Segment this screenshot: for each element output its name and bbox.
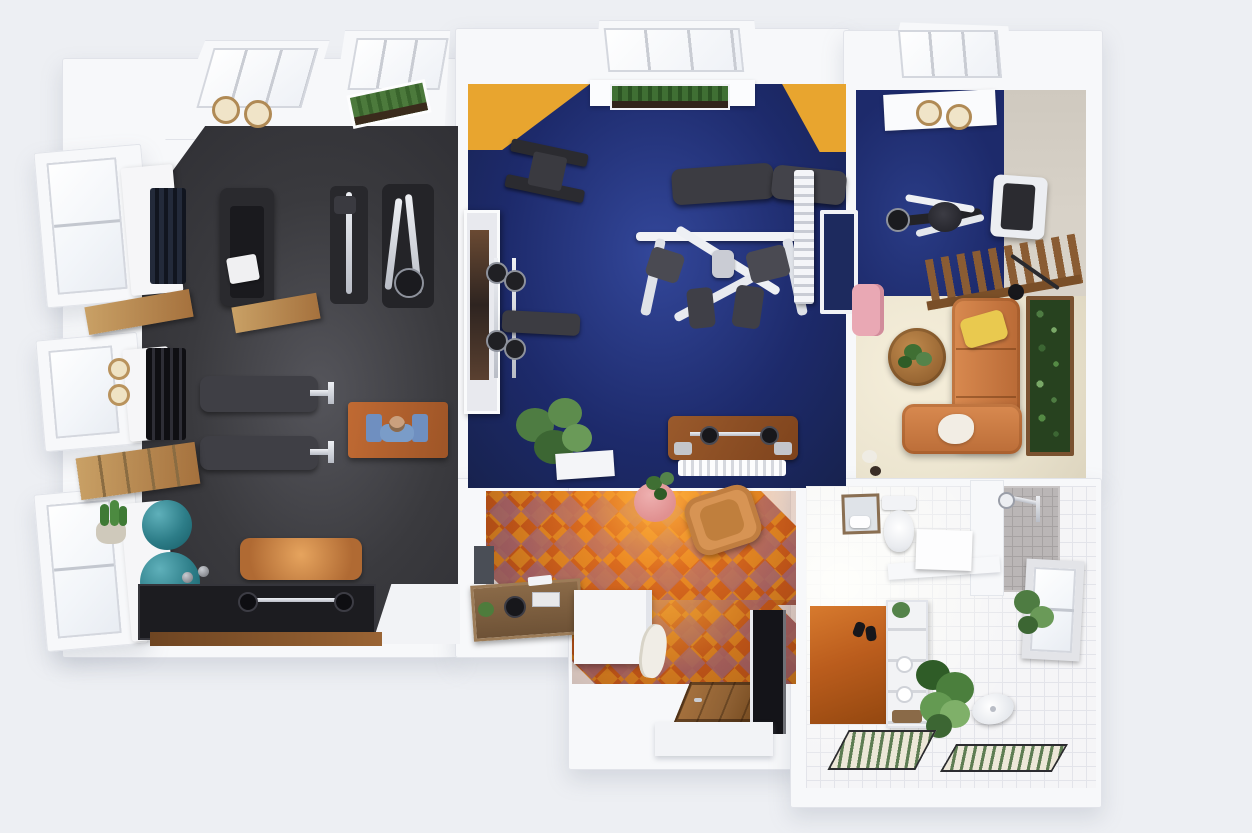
spotter-stool <box>674 442 692 455</box>
skylight-dormer-1-glazing <box>196 48 318 108</box>
wall-sconce-lamp <box>108 358 130 380</box>
exercise-ball <box>142 500 192 550</box>
vanity-counter <box>915 529 972 571</box>
elliptical-flywheel <box>394 268 424 298</box>
massage-bench-tbar <box>328 441 334 463</box>
rack-bridge <box>527 151 567 191</box>
pendant-lamp <box>212 96 240 124</box>
massage-bench-tbar <box>328 382 334 404</box>
skylight-dormer-4-glazing <box>898 30 1002 78</box>
window-plant <box>1018 616 1038 634</box>
desk-record-player <box>504 596 526 618</box>
copper-rug <box>150 632 382 646</box>
sofa-seam <box>956 396 1016 398</box>
decor-pebble <box>862 450 877 463</box>
entry-step <box>655 722 773 756</box>
orange-mat <box>240 538 362 580</box>
desk-card <box>532 592 560 607</box>
table-plant <box>916 352 932 366</box>
shower-riser <box>1036 496 1040 522</box>
workout-bench <box>671 162 775 205</box>
white-treadmill-belt <box>1000 183 1035 231</box>
radiator <box>678 460 786 476</box>
shelf-basket <box>892 710 922 723</box>
monstera-leaf <box>562 424 592 452</box>
planter-leaf <box>660 472 674 485</box>
pendant-lamp <box>946 104 972 130</box>
massage-bench <box>200 436 318 470</box>
weight-station-pad <box>334 196 356 214</box>
pendant-lamp <box>244 100 272 128</box>
slipper <box>865 625 877 641</box>
desk-moss <box>478 602 494 617</box>
shower-head <box>998 492 1015 509</box>
toilet-tank <box>882 496 916 510</box>
reception-dark-wall-panel <box>474 546 494 584</box>
cactus-plant <box>119 506 127 526</box>
sauna-door-panel <box>810 606 890 724</box>
barbell-bar <box>246 598 342 602</box>
cable-machine-pad <box>731 284 765 329</box>
desk-blue-pad <box>412 414 428 442</box>
barbell-storage-rack <box>146 348 186 440</box>
dumbbell <box>182 572 193 583</box>
towel-roll <box>896 656 913 673</box>
navy-radiator <box>150 188 186 284</box>
barbell-plate <box>700 426 719 445</box>
skylight-dormer-3-glazing <box>604 28 745 72</box>
pink-chair <box>852 284 884 336</box>
wall-sink <box>850 516 870 528</box>
door-handle <box>694 698 702 702</box>
framed-art <box>470 230 489 380</box>
cable-machine-hub <box>712 250 734 278</box>
cactus-plant <box>110 500 119 526</box>
white-throw <box>938 414 974 444</box>
floorplan-scene <box>0 0 1252 833</box>
dumbbell <box>198 566 209 577</box>
wall-sconce-lamp <box>108 384 130 406</box>
towel-roll <box>896 686 913 703</box>
dark-storefront-glazing <box>750 610 786 734</box>
pendant-lamp <box>916 100 942 126</box>
elliptical-seat-cone <box>928 202 962 232</box>
weight-plate <box>504 338 526 360</box>
sofa-seam <box>956 348 1016 350</box>
treadmill-console <box>226 254 260 285</box>
treadmill-belt <box>230 206 264 298</box>
leaf-rug <box>940 744 1068 772</box>
wall-bars-ladder <box>794 170 814 304</box>
cactus-plant <box>100 504 109 526</box>
elliptical-flywheel <box>886 208 910 232</box>
barbell-plate <box>334 592 354 612</box>
plant-platform <box>555 450 615 480</box>
bidet-drain <box>990 706 996 712</box>
weight-plate <box>504 270 526 292</box>
massage-bench <box>200 376 318 412</box>
skylight-dormer-2-glazing <box>347 38 448 90</box>
toilet-bowl <box>884 510 914 552</box>
cable-machine-pad <box>686 287 716 329</box>
skylight-planter-box <box>612 86 728 108</box>
barbell-plate <box>238 592 258 612</box>
decor-bowl <box>870 466 881 476</box>
shelf-plant <box>892 602 910 618</box>
bench-press-bench <box>501 310 580 336</box>
person-head <box>389 416 405 432</box>
spotter-stool <box>774 442 792 455</box>
vanity-mirror <box>841 493 880 534</box>
living-plant-wall <box>1026 296 1074 456</box>
table-plant <box>898 356 912 368</box>
planter-leaf <box>654 488 667 500</box>
